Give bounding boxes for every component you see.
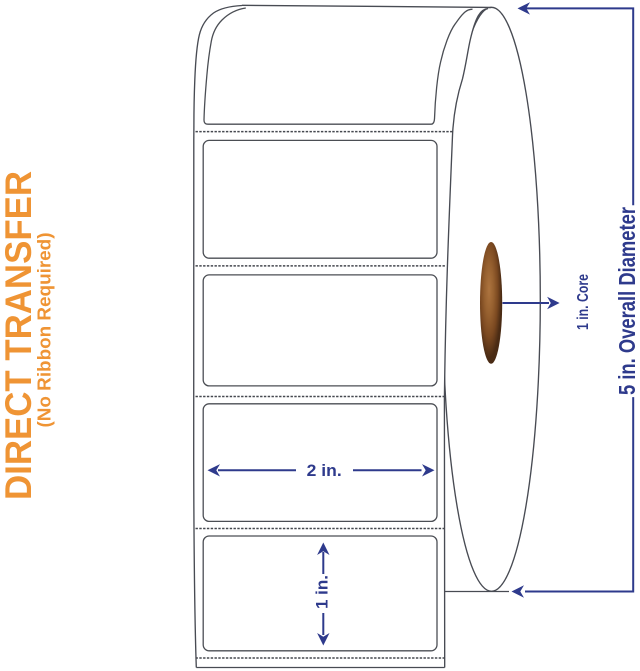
svg-text:5 in. Overall Diameter: 5 in. Overall Diameter [614, 207, 640, 395]
svg-text:1 in.: 1 in. [313, 575, 331, 609]
svg-text:DIRECT TRANSFER: DIRECT TRANSFER [0, 171, 39, 500]
svg-text:(No Ribbon Required): (No Ribbon Required) [35, 233, 55, 428]
svg-text:1 in. Core: 1 in. Core [575, 274, 592, 330]
svg-text:2 in.: 2 in. [307, 461, 342, 480]
